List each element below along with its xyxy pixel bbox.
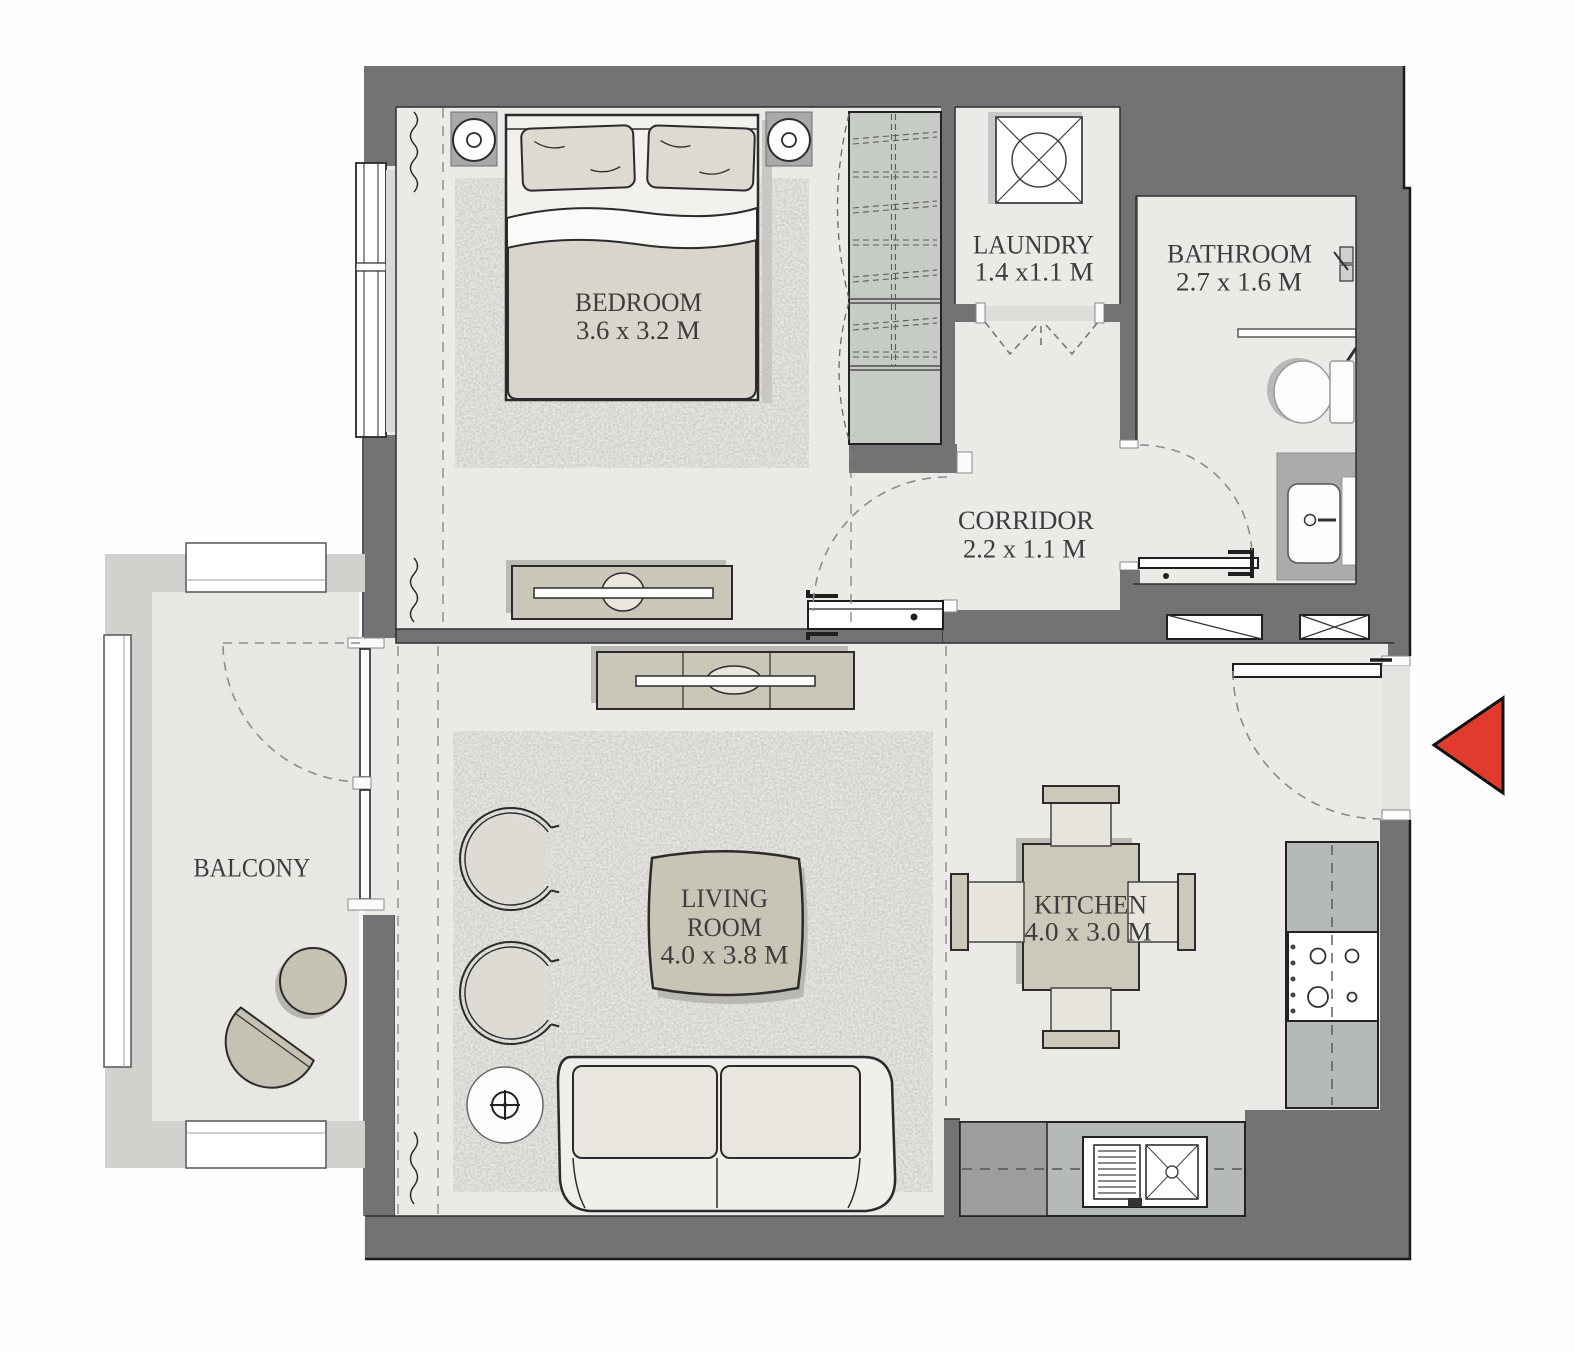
svg-text:2.2 x 1.1 M: 2.2 x 1.1 M <box>963 535 1086 564</box>
svg-text:CORRIDOR: CORRIDOR <box>958 505 1094 535</box>
svg-text:1.4 x1.1 M: 1.4 x1.1 M <box>975 258 1094 287</box>
svg-text:4.0 x 3.8 M: 4.0 x 3.8 M <box>661 941 789 970</box>
svg-text:BALCONY: BALCONY <box>194 853 311 883</box>
svg-text:BEDROOM: BEDROOM <box>575 287 702 317</box>
svg-text:4.0 x 3.0 M: 4.0 x 3.0 M <box>1024 918 1152 947</box>
svg-text:2.7 x 1.6 M: 2.7 x 1.6 M <box>1176 268 1302 297</box>
svg-text:ROOM: ROOM <box>687 912 762 942</box>
svg-text:KITCHEN: KITCHEN <box>1034 890 1147 920</box>
svg-text:LAUNDRY: LAUNDRY <box>973 230 1094 260</box>
svg-text:BATHROOM: BATHROOM <box>1167 239 1312 269</box>
svg-text:3.6 x 3.2 M: 3.6 x 3.2 M <box>576 316 700 345</box>
svg-text:LIVING: LIVING <box>681 883 768 913</box>
